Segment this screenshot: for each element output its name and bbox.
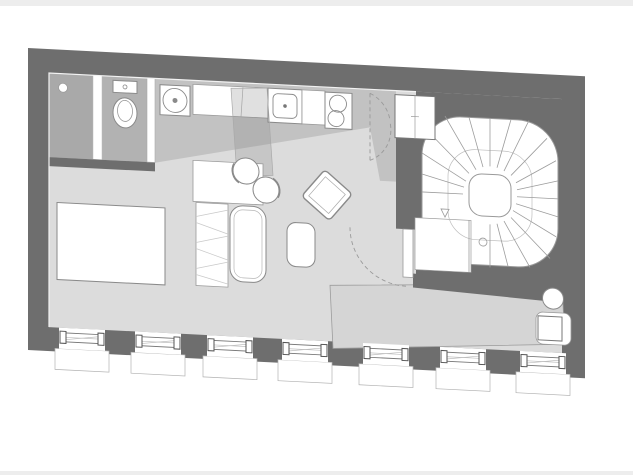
bathroom-door bbox=[147, 78, 155, 162]
page-edge-bottom bbox=[0, 471, 633, 475]
stair-west-wall bbox=[396, 131, 420, 230]
window-2 bbox=[131, 331, 185, 376]
floor-drain-icon bbox=[59, 83, 68, 92]
page-edge-top bbox=[0, 0, 633, 6]
entry-door-leaf bbox=[403, 229, 413, 278]
toilet-bowl bbox=[113, 97, 137, 128]
wardrobe bbox=[196, 203, 228, 288]
shower-area bbox=[49, 73, 93, 159]
plan-group bbox=[28, 48, 585, 396]
round-stool bbox=[543, 288, 564, 310]
stair-landing bbox=[415, 218, 471, 273]
window-7 bbox=[516, 351, 570, 396]
spiral-staircase bbox=[415, 115, 558, 277]
window-4 bbox=[278, 339, 332, 384]
toilet-cistern bbox=[113, 80, 137, 93]
window-5 bbox=[359, 343, 413, 388]
window-1 bbox=[55, 327, 109, 372]
coffee-table bbox=[287, 222, 315, 267]
bathroom-partition bbox=[93, 75, 102, 159]
bed bbox=[57, 202, 165, 284]
window-6 bbox=[436, 347, 490, 392]
counter-segment bbox=[302, 90, 325, 125]
sofa bbox=[230, 205, 266, 283]
floor-plan-canvas bbox=[0, 0, 633, 475]
window-3 bbox=[203, 335, 257, 380]
scanned-floor-plan-page bbox=[0, 0, 633, 475]
desk-chair bbox=[538, 316, 562, 341]
stair-newel bbox=[469, 173, 511, 217]
